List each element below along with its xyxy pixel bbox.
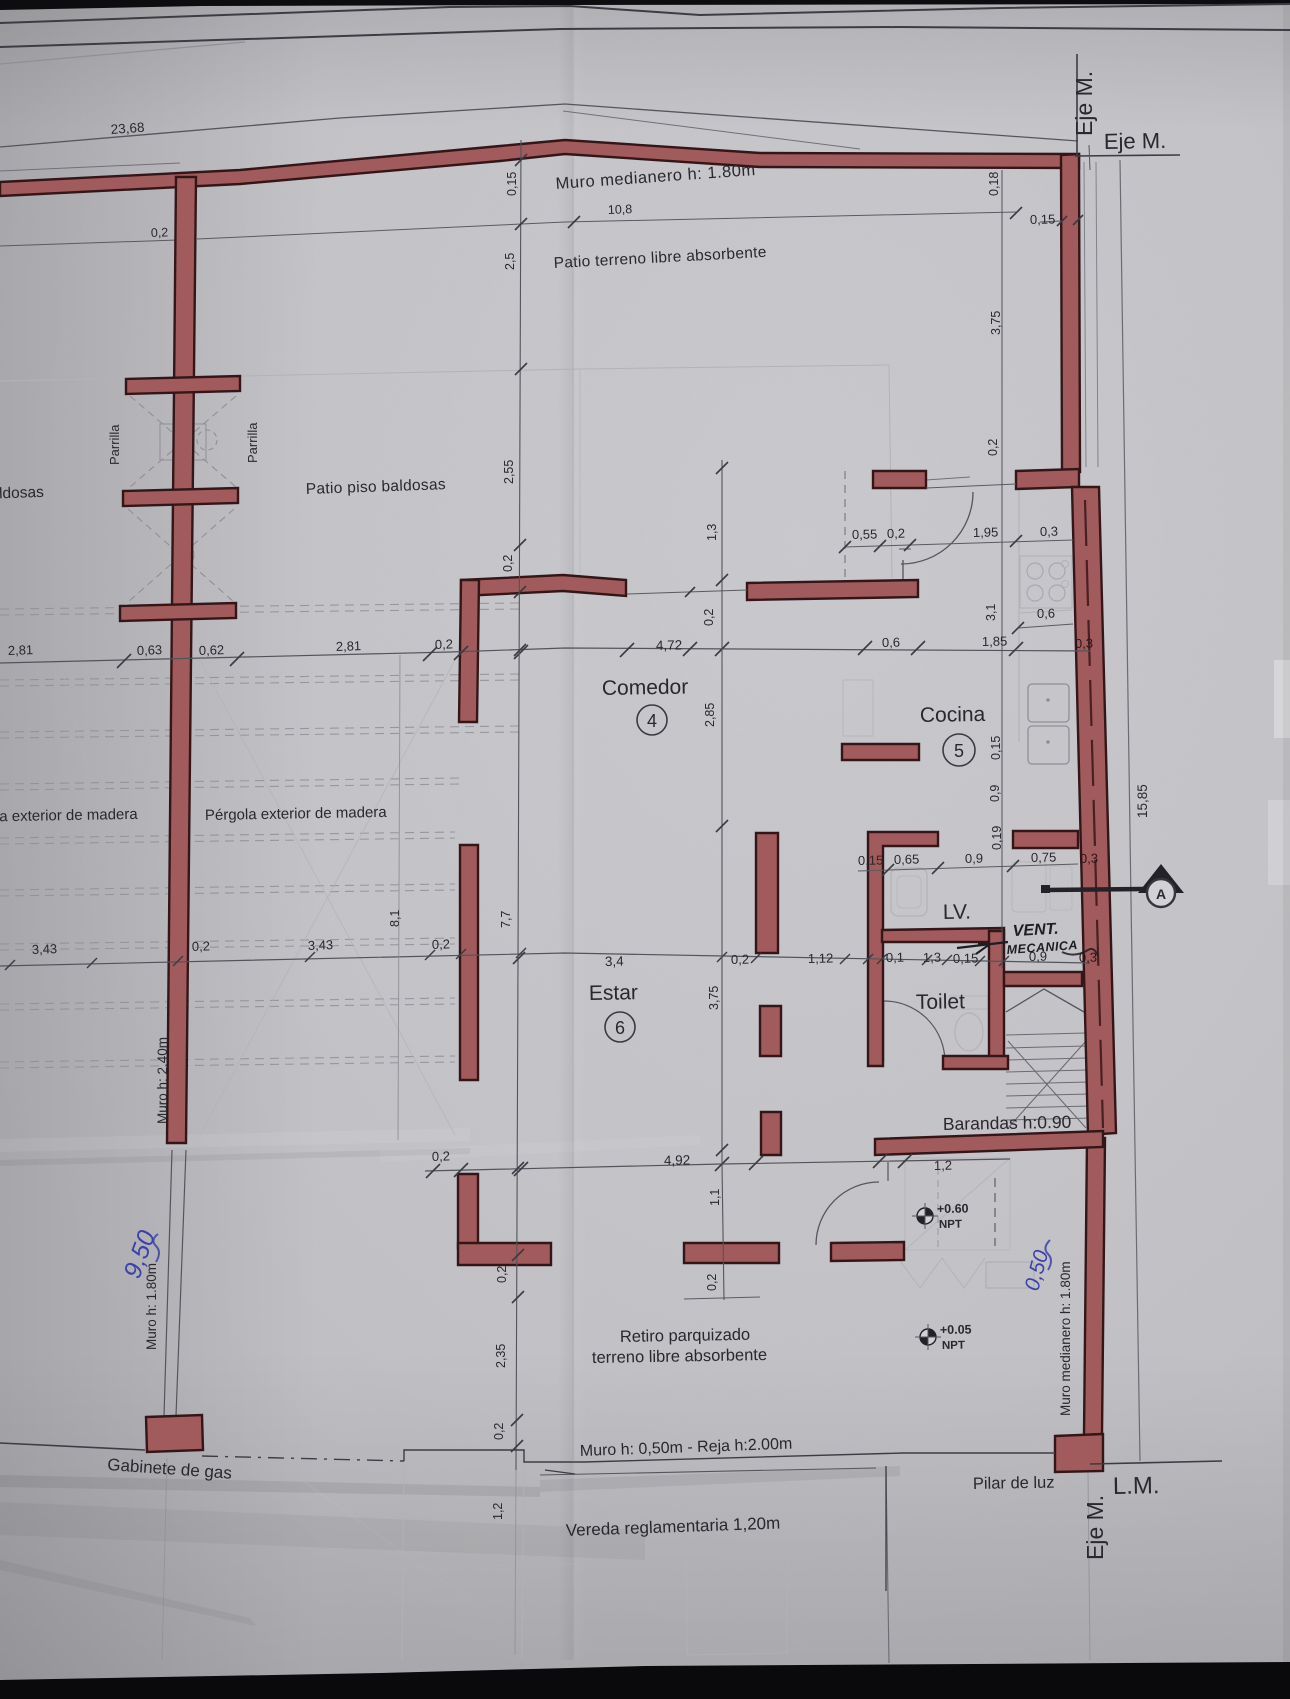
- svg-text:Pérgola exterior de madera: Pérgola exterior de madera: [205, 804, 388, 824]
- svg-text:5: 5: [954, 741, 964, 761]
- svg-text:0,55: 0,55: [852, 527, 878, 542]
- svg-text:Retiro parquizado: Retiro parquizado: [620, 1326, 751, 1346]
- svg-text:1,2: 1,2: [934, 1158, 952, 1173]
- svg-text:0,3: 0,3: [1080, 851, 1098, 866]
- svg-text:0,2: 0,2: [702, 609, 716, 626]
- svg-text:Pérgola exterior de madera: Pérgola exterior de madera: [0, 806, 138, 826]
- svg-text:0,1: 0,1: [886, 950, 904, 965]
- svg-text:2,81: 2,81: [336, 638, 362, 654]
- svg-text:0,2: 0,2: [495, 1266, 509, 1283]
- svg-text:1,12: 1,12: [808, 951, 834, 966]
- svg-text:0,3: 0,3: [1079, 950, 1097, 965]
- svg-text:Eje M.: Eje M.: [1082, 1495, 1108, 1560]
- svg-text:baldosas: baldosas: [0, 484, 44, 503]
- svg-text:0,18: 0,18: [987, 172, 1001, 196]
- svg-text:6: 6: [615, 1018, 625, 1038]
- svg-text:0,3: 0,3: [1075, 636, 1093, 651]
- svg-text:7,7: 7,7: [499, 911, 513, 928]
- svg-text:0,15: 0,15: [505, 172, 519, 196]
- svg-text:0,2: 0,2: [731, 952, 749, 967]
- svg-text:Barandas h:0.90: Barandas h:0.90: [943, 1112, 1072, 1134]
- svg-text:Eje M.: Eje M.: [1104, 128, 1167, 154]
- svg-text:4: 4: [647, 711, 657, 731]
- svg-text:0,6: 0,6: [882, 635, 900, 650]
- svg-text:2,5: 2,5: [503, 253, 517, 270]
- svg-text:10,8: 10,8: [608, 202, 633, 217]
- svg-text:0,15: 0,15: [858, 853, 884, 868]
- svg-text:0,2: 0,2: [151, 225, 169, 240]
- svg-text:0,15: 0,15: [1030, 212, 1056, 227]
- svg-text:Pilar de luz: Pilar de luz: [973, 1474, 1055, 1493]
- svg-text:3,43: 3,43: [308, 937, 334, 953]
- svg-text:0,2: 0,2: [432, 936, 451, 952]
- svg-text:Eje M.: Eje M.: [1071, 71, 1097, 136]
- svg-text:terreno libre absorbente: terreno libre absorbente: [592, 1346, 767, 1367]
- svg-text:VENT.: VENT.: [1012, 921, 1059, 940]
- svg-text:0,15: 0,15: [989, 736, 1003, 760]
- svg-text:NPT: NPT: [942, 1340, 965, 1352]
- svg-text:1,3: 1,3: [923, 950, 941, 965]
- svg-text:NPT: NPT: [939, 1219, 962, 1231]
- svg-text:0,2: 0,2: [501, 555, 515, 572]
- svg-text:0,65: 0,65: [894, 852, 920, 867]
- svg-text:Parrilla: Parrilla: [107, 424, 122, 465]
- svg-text:LV.: LV.: [943, 901, 971, 924]
- svg-text:0,6: 0,6: [1037, 606, 1055, 621]
- svg-text:1,3: 1,3: [705, 524, 719, 541]
- svg-text:0,2: 0,2: [887, 526, 905, 541]
- svg-text:3,43: 3,43: [32, 941, 58, 957]
- svg-text:0,15: 0,15: [953, 951, 979, 966]
- svg-text:1,85: 1,85: [982, 634, 1008, 649]
- svg-text:3,75: 3,75: [989, 311, 1003, 335]
- svg-text:Comedor: Comedor: [602, 675, 689, 700]
- svg-text:0,2: 0,2: [432, 1148, 451, 1164]
- svg-text:0,2: 0,2: [705, 1274, 719, 1291]
- svg-text:1,1: 1,1: [708, 1189, 722, 1206]
- svg-text:1,95: 1,95: [973, 525, 999, 540]
- svg-text:2,55: 2,55: [502, 460, 516, 484]
- svg-text:Toilet: Toilet: [916, 990, 966, 1014]
- svg-text:3,1: 3,1: [984, 604, 998, 621]
- svg-text:+0.60: +0.60: [937, 1201, 969, 1216]
- svg-text:23,68: 23,68: [110, 120, 145, 137]
- svg-text:0,2: 0,2: [492, 1423, 506, 1440]
- svg-text:3,4: 3,4: [605, 954, 625, 969]
- svg-text:0,9: 0,9: [965, 851, 983, 866]
- svg-text:0,9: 0,9: [988, 785, 1002, 802]
- svg-text:2,35: 2,35: [494, 1344, 508, 1368]
- svg-text:4,92: 4,92: [664, 1153, 691, 1168]
- svg-text:3,75: 3,75: [707, 986, 721, 1010]
- svg-text:+0.05: +0.05: [940, 1322, 972, 1337]
- svg-text:1,2: 1,2: [491, 1503, 505, 1520]
- svg-text:A: A: [1156, 886, 1166, 902]
- svg-text:0,63: 0,63: [137, 642, 163, 658]
- svg-text:2,85: 2,85: [703, 703, 717, 727]
- svg-text:8,1: 8,1: [388, 910, 402, 927]
- svg-text:4,72: 4,72: [656, 638, 683, 653]
- svg-text:Muro medianero h: 1.80m: Muro medianero h: 1.80m: [1058, 1261, 1073, 1416]
- svg-text:Estar: Estar: [589, 981, 638, 1005]
- svg-text:0,2: 0,2: [986, 439, 1000, 456]
- svg-text:0,19: 0,19: [990, 826, 1004, 850]
- svg-text:15,85: 15,85: [1135, 784, 1150, 818]
- svg-text:0,2: 0,2: [192, 938, 211, 954]
- svg-text:0,2: 0,2: [435, 636, 454, 652]
- svg-text:Cocina: Cocina: [920, 703, 986, 727]
- svg-text:Muro h: 2.40m: Muro h: 2.40m: [155, 1037, 170, 1124]
- svg-text:0,62: 0,62: [199, 642, 225, 658]
- svg-text:Parrilla: Parrilla: [245, 422, 260, 463]
- svg-text:2,81: 2,81: [8, 642, 34, 658]
- svg-text:0,75: 0,75: [1031, 850, 1057, 865]
- svg-text:L.M.: L.M.: [1113, 1472, 1160, 1500]
- svg-text:0,3: 0,3: [1040, 524, 1058, 539]
